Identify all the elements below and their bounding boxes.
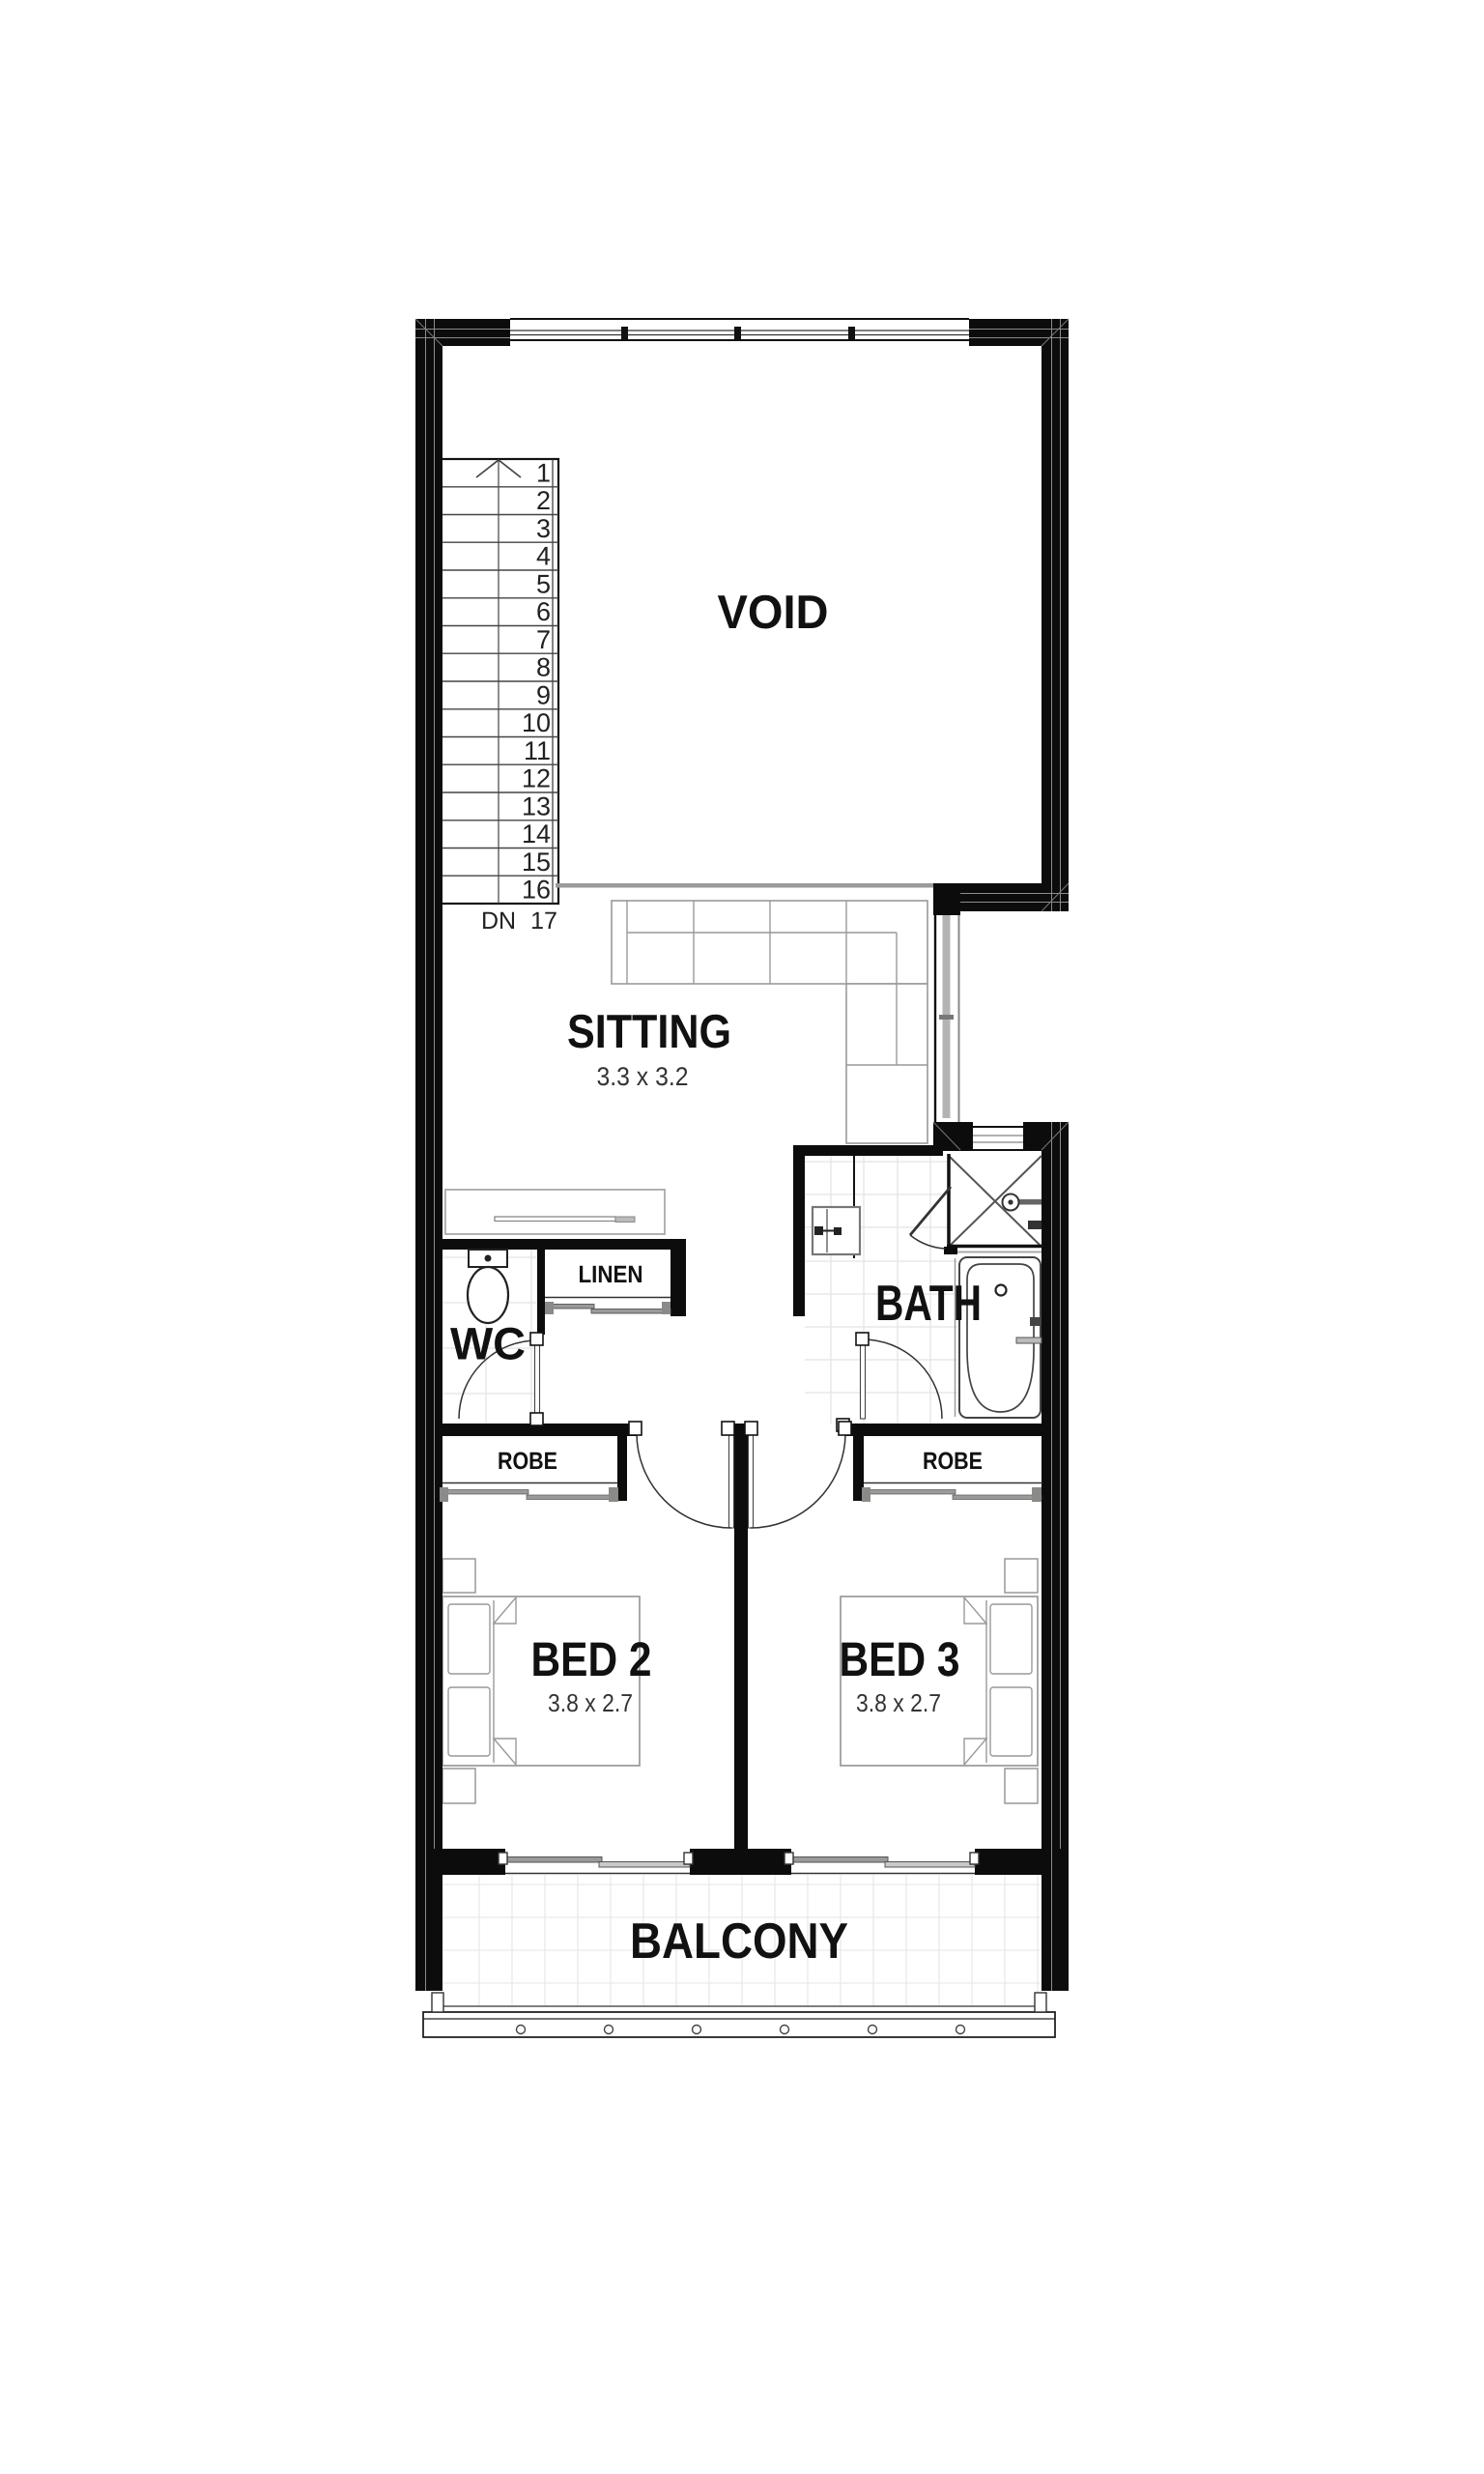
svg-text:BALCONY: BALCONY <box>630 1913 848 1970</box>
svg-text:3: 3 <box>536 514 551 543</box>
svg-text:BED 2: BED 2 <box>531 1632 652 1686</box>
svg-text:16: 16 <box>522 876 551 905</box>
svg-text:7: 7 <box>536 625 551 654</box>
svg-text:VOID: VOID <box>718 587 829 639</box>
svg-text:SITTING: SITTING <box>567 1006 731 1058</box>
svg-text:BED 3: BED 3 <box>840 1632 960 1686</box>
svg-text:ROBE: ROBE <box>923 1448 983 1475</box>
svg-text:10: 10 <box>522 708 551 737</box>
svg-text:BATH: BATH <box>875 1276 982 1332</box>
svg-text:3.3 x 3.2: 3.3 x 3.2 <box>597 1062 689 1091</box>
svg-text:3.8 x 2.7: 3.8 x 2.7 <box>548 1688 633 1717</box>
svg-text:12: 12 <box>522 764 551 793</box>
svg-text:15: 15 <box>522 848 551 877</box>
svg-text:DN: DN <box>481 907 516 935</box>
svg-text:3.8 x 2.7: 3.8 x 2.7 <box>856 1688 941 1717</box>
svg-text:8: 8 <box>536 653 551 682</box>
svg-text:9: 9 <box>536 680 551 709</box>
svg-text:ROBE: ROBE <box>498 1448 557 1475</box>
svg-text:LINEN: LINEN <box>579 1261 643 1288</box>
svg-text:2: 2 <box>536 486 551 515</box>
svg-text:17: 17 <box>530 907 557 935</box>
svg-text:13: 13 <box>522 791 551 820</box>
svg-text:14: 14 <box>522 820 551 849</box>
svg-text:4: 4 <box>536 542 551 571</box>
svg-text:5: 5 <box>536 569 551 598</box>
svg-text:6: 6 <box>536 597 551 626</box>
svg-text:1: 1 <box>536 458 551 487</box>
svg-text:WC: WC <box>450 1318 526 1369</box>
svg-text:11: 11 <box>524 736 551 765</box>
